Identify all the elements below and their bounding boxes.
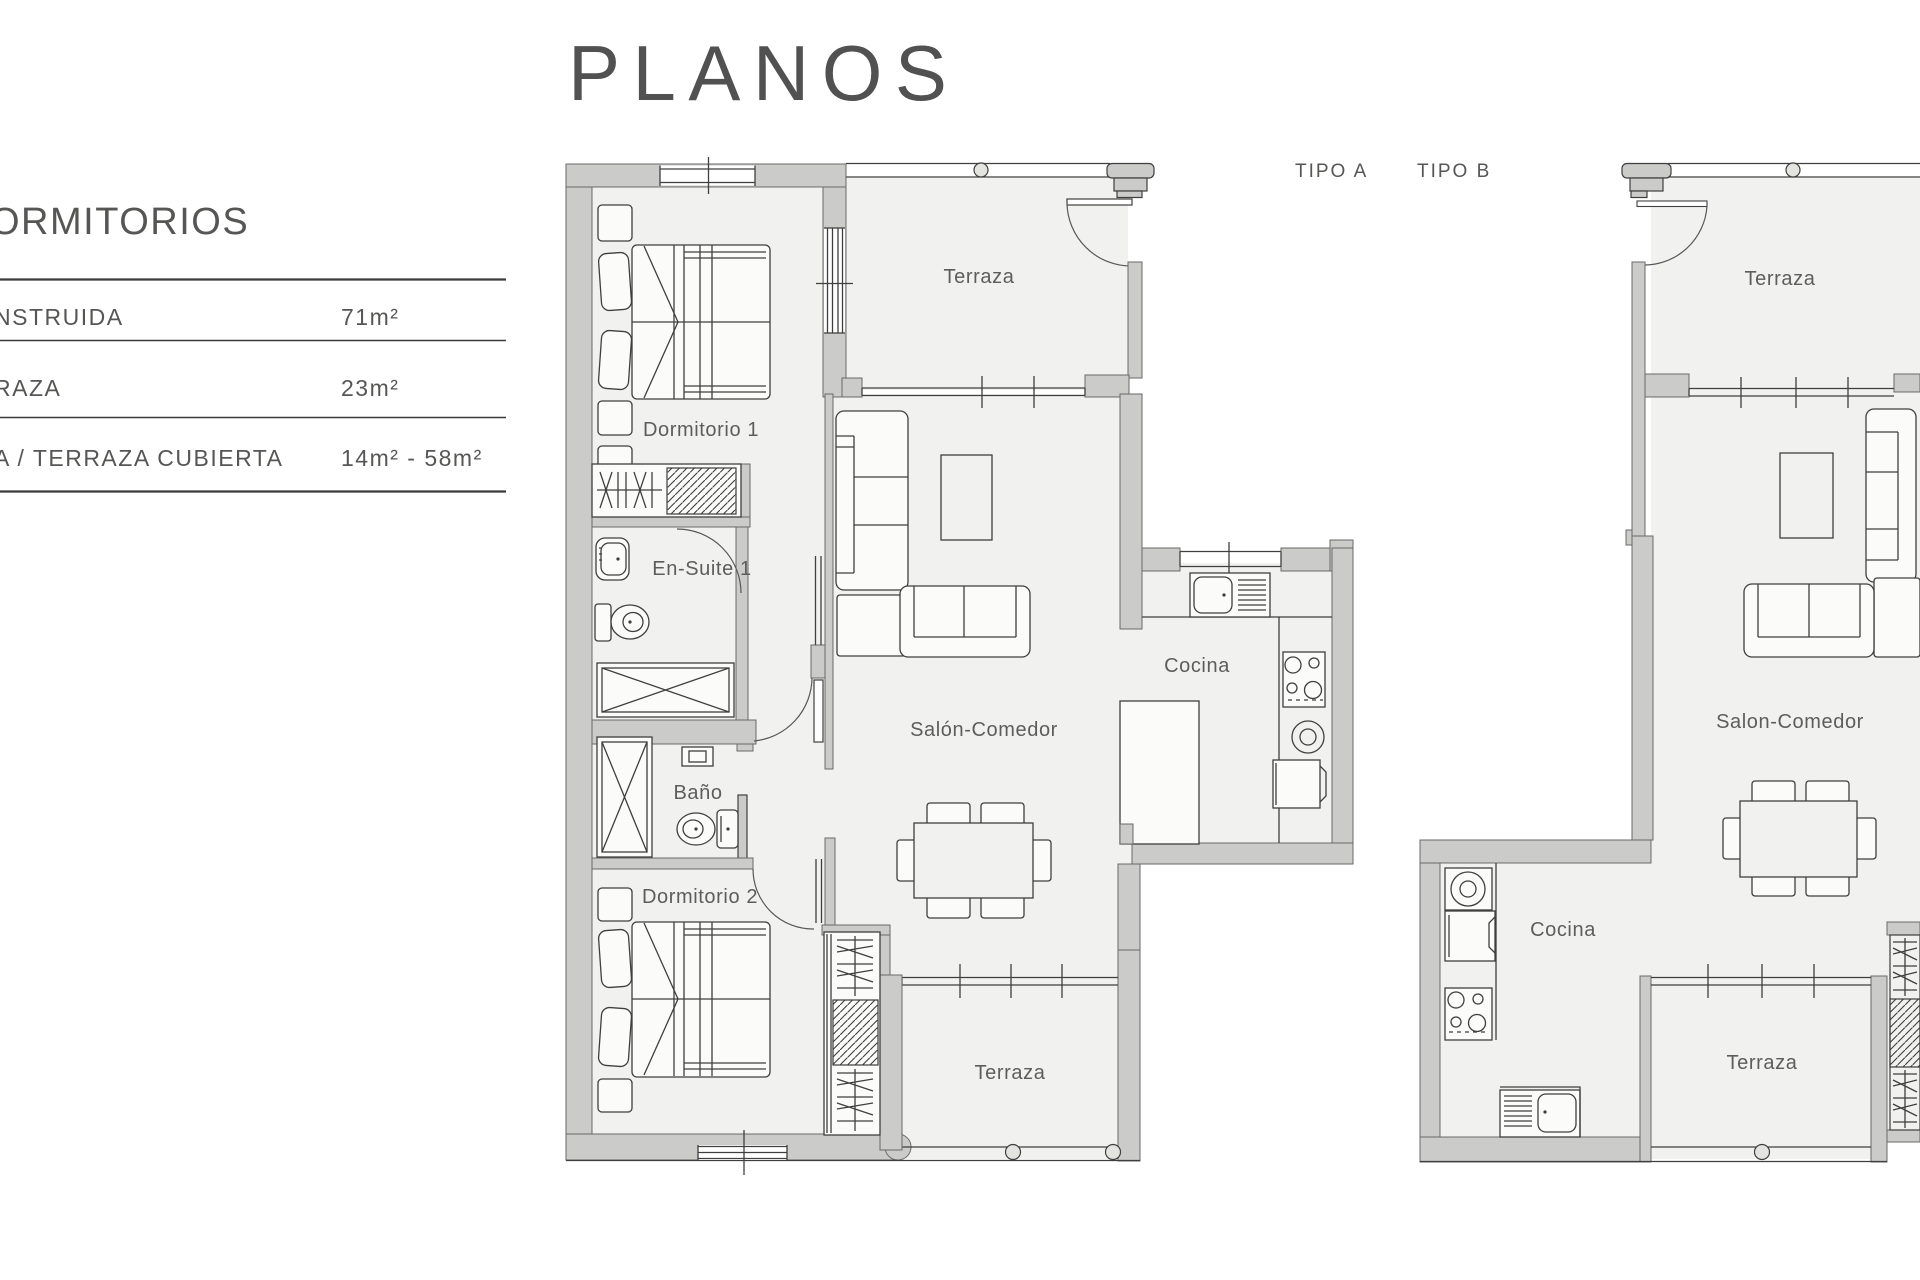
svg-text:71m²: 71m² — [341, 304, 399, 330]
svg-text:A / TERRAZA CUBIERTA: A / TERRAZA CUBIERTA — [0, 445, 283, 471]
svg-text:ORMITORIOS: ORMITORIOS — [0, 201, 249, 243]
svg-text:NSTRUIDA: NSTRUIDA — [0, 304, 124, 330]
svg-text:Baño: Baño — [673, 782, 722, 804]
svg-text:TIPO A: TIPO A — [1295, 161, 1368, 182]
svg-text:PLANOS: PLANOS — [568, 29, 959, 117]
svg-text:Terraza: Terraza — [1745, 268, 1816, 290]
svg-text:Cocina: Cocina — [1530, 919, 1596, 941]
svg-text:Cocina: Cocina — [1164, 655, 1230, 677]
svg-text:TIPO B: TIPO B — [1417, 161, 1491, 182]
svg-text:RAZA: RAZA — [0, 375, 61, 401]
svg-text:Salón-Comedor: Salón-Comedor — [910, 719, 1058, 741]
svg-text:Terraza: Terraza — [975, 1062, 1046, 1084]
svg-text:Terraza: Terraza — [1727, 1052, 1798, 1074]
svg-text:En-Suite 1: En-Suite 1 — [652, 558, 751, 580]
svg-text:23m²: 23m² — [341, 375, 399, 401]
svg-text:Dormitorio 2: Dormitorio 2 — [642, 886, 758, 908]
svg-text:Dormitorio 1: Dormitorio 1 — [643, 419, 759, 441]
svg-text:14m² - 58m²: 14m² - 58m² — [341, 445, 483, 471]
svg-text:Terraza: Terraza — [944, 266, 1015, 288]
svg-text:Salon-Comedor: Salon-Comedor — [1716, 711, 1864, 733]
